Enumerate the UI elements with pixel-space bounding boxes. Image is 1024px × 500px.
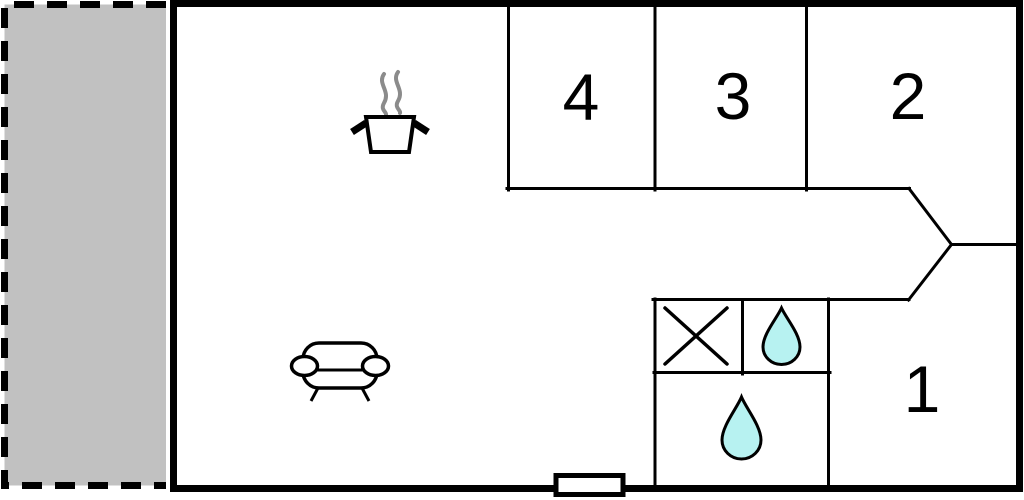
pot-handle-icon	[352, 123, 366, 132]
steam-line-icon	[382, 74, 386, 115]
water-drop-icon-large	[716, 392, 770, 464]
water-drop-icon-small	[757, 304, 809, 368]
sofa-armrest-icon	[363, 357, 389, 376]
sofa-leg-icon	[311, 388, 318, 401]
floorplan-canvas: 4 3 2 1	[0, 0, 1024, 500]
sofa-leg-icon	[362, 388, 369, 401]
pot-handle-icon	[414, 123, 428, 132]
room-label-3: 3	[715, 63, 752, 129]
sofa-armrest-icon	[292, 357, 318, 376]
steam-line-icon	[396, 72, 400, 113]
floorplan-walls	[0, 0, 1024, 500]
door-marker	[556, 476, 623, 495]
shower-cross-icon	[656, 301, 740, 372]
room-label-2: 2	[890, 63, 927, 129]
stove-pot-steam-icon	[348, 66, 432, 158]
room-label-4: 4	[563, 64, 600, 130]
pot-body-icon	[366, 117, 414, 152]
terrace-area	[5, 5, 167, 486]
sofa-icon	[288, 340, 392, 402]
room-label-1: 1	[904, 356, 941, 422]
